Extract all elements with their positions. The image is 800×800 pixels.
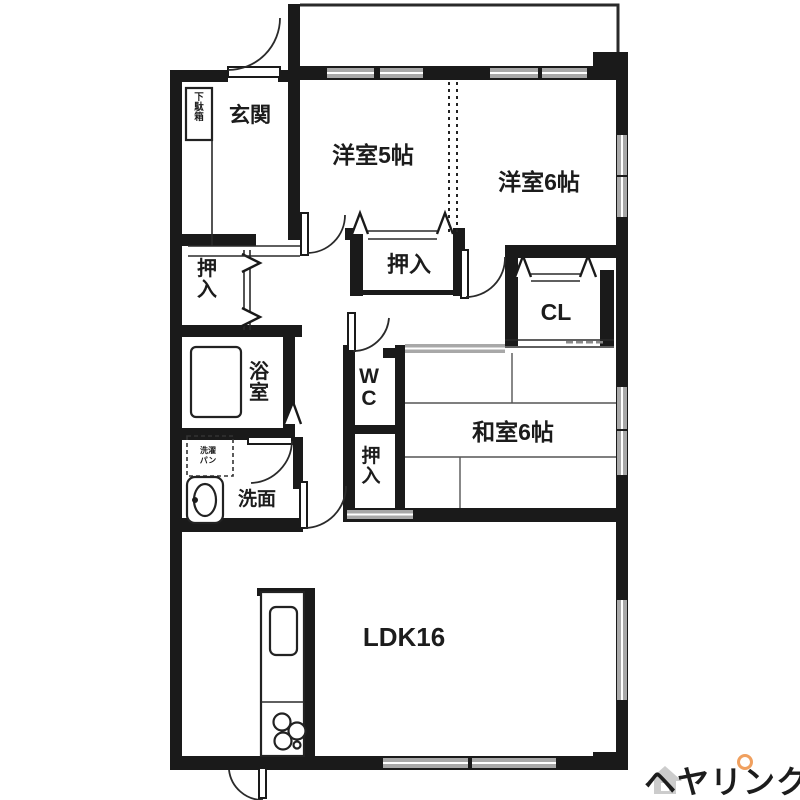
washbasin: [187, 477, 223, 523]
windows: [327, 68, 627, 768]
logo-ring-icon: [739, 756, 752, 769]
label-wc: WC: [359, 365, 379, 410]
label-washroom: 洗面: [238, 487, 276, 510]
ldk-door: [300, 482, 307, 528]
label-west-room5: 洋室5帖: [332, 142, 414, 168]
label-laundry-1: 洗濯: [200, 445, 216, 455]
label-japanese-room: 和室6帖: [472, 419, 554, 445]
label-getabako: 下駄箱: [193, 92, 204, 123]
tiny-marks: [566, 341, 603, 344]
label-wc-closet: 押入: [361, 444, 380, 487]
room-labels: 玄関 下駄箱 押入 浴室 洗濯 パン 洗面 WC 押入 洋室5帖 押入 洋室6帖…: [193, 92, 580, 652]
logo-text: ヘヤリンク: [644, 764, 800, 800]
floorplan-drawing: 玄関 下駄箱 押入 浴室 洗濯 パン 洗面 WC 押入 洋室5帖 押入 洋室6帖…: [0, 0, 800, 800]
label-ldk: LDK16: [363, 622, 445, 652]
kitchen-sink: [270, 607, 297, 655]
label-cl: CL: [541, 299, 572, 325]
label-genkan: 玄関: [229, 103, 271, 127]
entrance-door: [228, 67, 280, 77]
balcony-outline: [300, 5, 618, 53]
label-bath: 浴室: [249, 360, 270, 404]
kitchen-counter: [261, 592, 306, 756]
label-laundry-2: パン: [200, 455, 216, 465]
bathtub: [191, 347, 241, 417]
washroom-door: [248, 437, 292, 444]
label-west-room5-closet: 押入: [387, 252, 431, 277]
rear-door: [259, 768, 266, 798]
label-hall-closet: 押入: [197, 256, 217, 301]
floorplan-page: 玄関 下駄箱 押入 浴室 洗濯 パン 洗面 WC 押入 洋室5帖 押入 洋室6帖…: [0, 0, 800, 800]
west-room6-door: [461, 250, 468, 298]
west-room5-door: [301, 213, 308, 255]
logo: ヘヤリンク: [644, 756, 800, 800]
label-west-room6: 洋室6帖: [498, 169, 580, 195]
wc-door: [348, 313, 355, 351]
